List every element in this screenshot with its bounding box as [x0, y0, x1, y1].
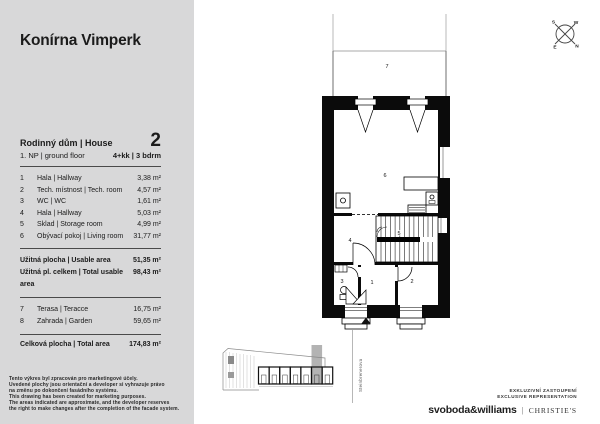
label-room6: 6 — [383, 173, 386, 179]
info-panel: Konírna Vimperk Rodinný dům | House 2 1.… — [0, 0, 194, 424]
floor-label: 1. NP | ground floor — [20, 151, 85, 160]
table-row: 5 Sklad | Storage room 4,99 m² — [20, 219, 161, 231]
outdoor-list: 7 Terasa | Teracce 16,75 m² 8 Zahrada | … — [20, 304, 161, 328]
page-title: Konírna Vimperk — [20, 32, 141, 50]
street-annotation: Steinbrenerova — [353, 318, 371, 404]
total-area-row: Celková plocha | Total area 174,83 m² — [20, 341, 161, 348]
table-row: Užitná pl. celkem | Total usable area 98… — [20, 267, 161, 291]
floor-plan: S W E N — [195, 0, 600, 424]
room-list: 1 Hala | Hallway 3,38 m² 2 Tech. místnos… — [20, 173, 161, 242]
label-room1: 1 — [370, 280, 373, 286]
disclaimer-text: Tento výkres byl zpracován pro marketing… — [9, 376, 187, 412]
compass-e: E — [553, 45, 557, 51]
divider — [20, 334, 161, 335]
compass-n: N — [575, 44, 579, 50]
divider — [20, 248, 161, 249]
table-row: 2 Tech. místnost | Tech. room 4,57 m² — [20, 185, 161, 197]
table-row: 7 Terasa | Teracce 16,75 m² — [20, 304, 161, 316]
layout-label: 4+kk | 3 bdrm — [113, 151, 161, 160]
site-key-drawing — [223, 345, 333, 390]
compass-icon: S W E N — [552, 20, 579, 51]
svoboda-williams-logo: svoboda&williams — [428, 404, 516, 416]
table-row: Užitná plocha | Usable area 51,35 m² — [20, 255, 161, 267]
christies-logo: CHRISTIE'S — [529, 406, 577, 415]
label-room5: 5 — [397, 231, 400, 237]
table-row: 3 WC | WC 1,61 m² — [20, 196, 161, 208]
table-row: 6 Obývací pokoj | Living room 31,77 m² — [20, 231, 161, 243]
label-terrace: 7 — [385, 64, 388, 70]
terrace-outline — [333, 14, 446, 96]
footer-branding: EXKLUZIVNÍ ZASTOUPENÍ EXCLUSIVE REPRESEN… — [428, 388, 577, 416]
usable-area-summary: Užitná plocha | Usable area 51,35 m² Uži… — [20, 255, 161, 291]
table-row: 4 Hala | Hallway 5,03 m² — [20, 208, 161, 220]
house-type-label: Rodinný dům | House — [20, 138, 113, 148]
label-room2: 2 — [410, 279, 413, 285]
compass-w: W — [574, 20, 579, 26]
table-row: 8 Zahrada | Garden 59,65 m² — [20, 316, 161, 328]
label-room4: 4 — [348, 238, 351, 244]
logo-divider: | — [522, 406, 524, 415]
label-room3: 3 — [340, 279, 343, 285]
divider — [20, 297, 161, 298]
house-number: 2 — [150, 133, 161, 148]
divider — [20, 166, 161, 167]
street-name: Steinbrenerova — [358, 358, 363, 392]
exclusive-line-en: EXCLUSIVE REPRESENTATION — [428, 394, 577, 400]
table-row: 1 Hala | Hallway 3,38 m² — [20, 173, 161, 185]
area-table: Rodinný dům | House 2 1. NP | ground flo… — [20, 133, 161, 348]
